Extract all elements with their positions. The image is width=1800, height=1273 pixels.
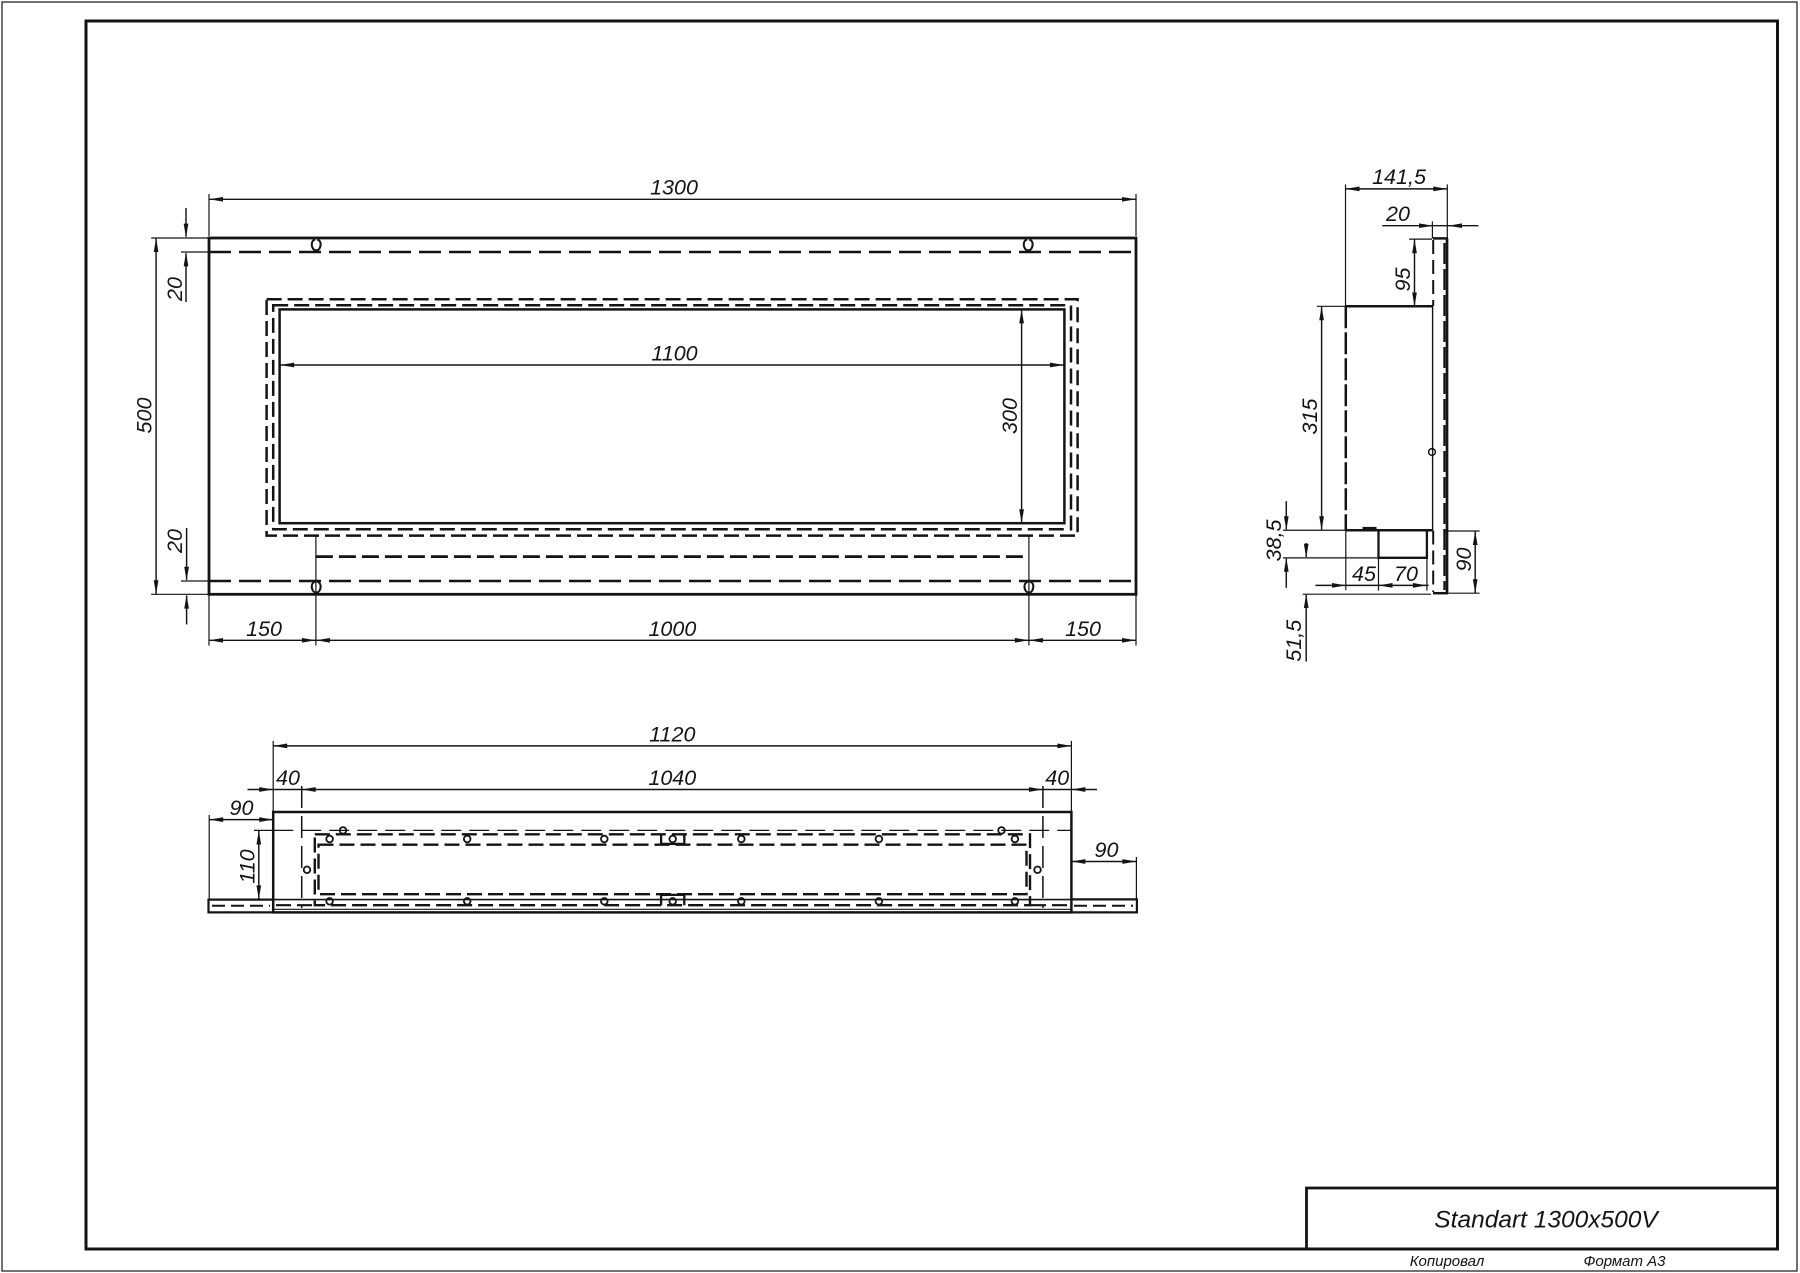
svg-text:40: 40 — [1045, 766, 1069, 790]
svg-text:90: 90 — [230, 796, 254, 820]
svg-text:1040: 1040 — [648, 766, 696, 790]
svg-text:315: 315 — [1298, 398, 1322, 435]
svg-text:45: 45 — [1352, 562, 1377, 586]
svg-text:90: 90 — [1095, 838, 1119, 862]
svg-text:20: 20 — [163, 277, 187, 302]
svg-text:150: 150 — [1065, 617, 1101, 641]
svg-text:Standart 1300x500V: Standart 1300x500V — [1434, 1207, 1660, 1234]
svg-text:90: 90 — [1452, 548, 1476, 572]
svg-text:1100: 1100 — [651, 341, 697, 365]
svg-text:141,5: 141,5 — [1372, 165, 1427, 189]
svg-text:95: 95 — [1391, 267, 1415, 292]
svg-text:70: 70 — [1394, 562, 1418, 586]
svg-text:38,5: 38,5 — [1262, 518, 1286, 561]
svg-text:150: 150 — [246, 617, 282, 641]
svg-text:110: 110 — [235, 849, 259, 883]
svg-text:51,5: 51,5 — [1282, 619, 1306, 662]
svg-text:500: 500 — [133, 398, 157, 434]
svg-text:20: 20 — [1385, 202, 1410, 226]
svg-text:1000: 1000 — [648, 617, 696, 641]
svg-text:Копировал: Копировал — [1410, 1253, 1485, 1270]
svg-text:40: 40 — [276, 766, 300, 790]
svg-text:1120: 1120 — [649, 722, 695, 746]
svg-text:300: 300 — [998, 398, 1022, 434]
svg-text:Формат А3: Формат А3 — [1583, 1253, 1666, 1270]
svg-text:20: 20 — [163, 529, 187, 554]
svg-text:1300: 1300 — [650, 176, 698, 200]
